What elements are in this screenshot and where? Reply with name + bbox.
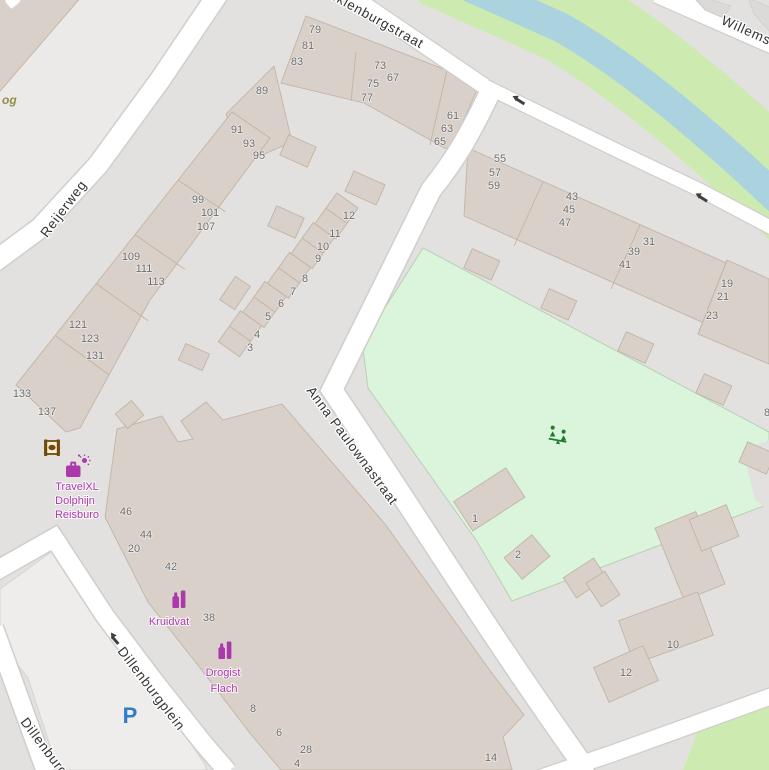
svg-text:7: 7: [290, 286, 296, 298]
svg-text:28: 28: [300, 744, 312, 756]
svg-text:65: 65: [434, 136, 446, 148]
svg-text:10: 10: [667, 639, 679, 651]
svg-text:20: 20: [128, 543, 140, 555]
svg-text:4: 4: [254, 329, 260, 341]
svg-text:19: 19: [721, 278, 733, 290]
svg-text:12: 12: [620, 667, 632, 679]
svg-text:137: 137: [38, 406, 56, 418]
svg-text:43: 43: [566, 191, 578, 203]
svg-text:107: 107: [197, 221, 215, 233]
svg-text:4: 4: [294, 758, 300, 770]
svg-text:93: 93: [243, 138, 255, 150]
svg-text:123: 123: [81, 333, 99, 345]
svg-text:Kruidvat: Kruidvat: [149, 616, 189, 628]
svg-text:99: 99: [192, 194, 204, 206]
svg-text:95: 95: [253, 150, 265, 162]
svg-text:83: 83: [291, 56, 303, 68]
svg-text:133: 133: [13, 388, 31, 400]
svg-text:55: 55: [494, 153, 506, 165]
svg-text:21: 21: [717, 291, 729, 303]
svg-text:109: 109: [122, 251, 140, 263]
svg-text:1: 1: [472, 513, 478, 525]
svg-text:23: 23: [706, 310, 718, 322]
svg-text:113: 113: [147, 276, 165, 288]
svg-text:73: 73: [374, 60, 386, 72]
svg-text:3: 3: [247, 342, 253, 354]
svg-text:8: 8: [764, 407, 769, 419]
svg-text:5: 5: [265, 311, 271, 323]
svg-text:44: 44: [140, 529, 152, 541]
svg-text:12: 12: [343, 210, 355, 222]
svg-text:9: 9: [315, 253, 321, 265]
svg-text:121: 121: [69, 319, 87, 331]
svg-text:39: 39: [628, 246, 640, 258]
svg-text:79: 79: [309, 24, 321, 36]
svg-text:61: 61: [447, 110, 459, 122]
svg-text:11: 11: [329, 228, 340, 240]
svg-text:Reisburo: Reisburo: [55, 509, 99, 521]
svg-text:Flach: Flach: [211, 683, 238, 695]
svg-text:67: 67: [387, 72, 399, 84]
svg-text:131: 131: [86, 350, 104, 362]
svg-text:TravelXL: TravelXL: [55, 481, 99, 493]
svg-text:8: 8: [250, 703, 256, 715]
svg-text:45: 45: [563, 204, 575, 216]
svg-text:6: 6: [276, 727, 282, 739]
svg-text:Drogist: Drogist: [206, 667, 241, 679]
svg-text:89: 89: [256, 85, 268, 97]
svg-text:63: 63: [441, 123, 453, 135]
svg-text:14: 14: [485, 752, 497, 764]
svg-text:75: 75: [367, 78, 379, 90]
svg-text:31: 31: [643, 236, 655, 248]
svg-text:og: og: [2, 93, 17, 107]
svg-text:101: 101: [201, 207, 219, 219]
svg-text:2: 2: [515, 549, 521, 561]
svg-text:41: 41: [619, 259, 631, 271]
svg-text:10: 10: [317, 241, 329, 253]
svg-text:77: 77: [361, 92, 373, 104]
svg-text:46: 46: [120, 506, 132, 518]
svg-text:81: 81: [302, 40, 314, 52]
svg-text:6: 6: [278, 298, 284, 310]
svg-text:P: P: [123, 703, 138, 728]
svg-text:59: 59: [488, 180, 500, 192]
svg-text:42: 42: [165, 561, 177, 573]
svg-text:47: 47: [559, 217, 571, 229]
svg-text:38: 38: [203, 612, 215, 624]
svg-text:Dolphijn: Dolphijn: [55, 495, 95, 507]
svg-text:57: 57: [489, 167, 501, 179]
svg-text:8: 8: [302, 273, 308, 285]
svg-text:91: 91: [231, 124, 243, 136]
svg-text:111: 111: [136, 263, 153, 275]
